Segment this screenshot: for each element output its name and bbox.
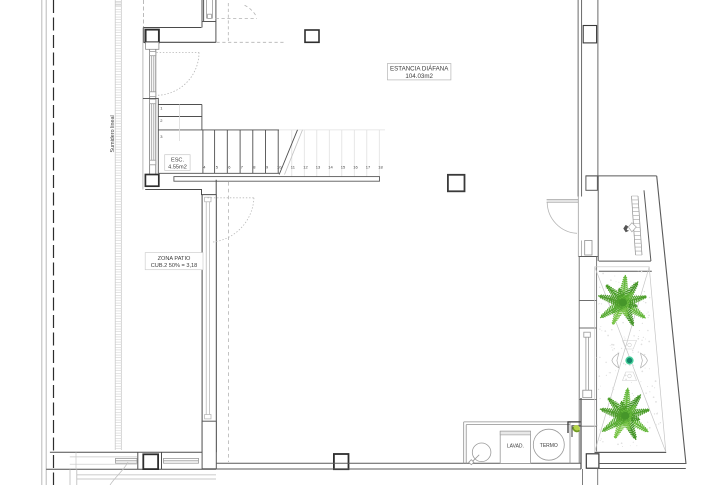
svg-text:18: 18 (378, 164, 383, 169)
svg-text:ZONA PATIO: ZONA PATIO (158, 256, 191, 262)
svg-text:13: 13 (316, 164, 321, 169)
svg-text:10: 10 (277, 164, 282, 169)
svg-text:12: 12 (303, 164, 308, 169)
svg-text:LAVAD.: LAVAD. (507, 444, 524, 450)
svg-text:CUB.2 50% = 3,18: CUB.2 50% = 3,18 (151, 263, 198, 269)
svg-text:ESC.: ESC. (171, 158, 185, 164)
svg-text:104.03m2: 104.03m2 (405, 73, 433, 80)
svg-text:17: 17 (366, 164, 371, 169)
svg-text:15: 15 (341, 164, 346, 169)
svg-text:ESTANCIA DIÁFANA: ESTANCIA DIÁFANA (390, 66, 449, 73)
svg-text:Sumidero lineal: Sumidero lineal (110, 115, 116, 152)
svg-text:16: 16 (353, 164, 358, 169)
svg-text:TERMO: TERMO (540, 443, 558, 449)
svg-text:4.55m2: 4.55m2 (168, 164, 187, 170)
svg-text:14: 14 (328, 164, 333, 169)
